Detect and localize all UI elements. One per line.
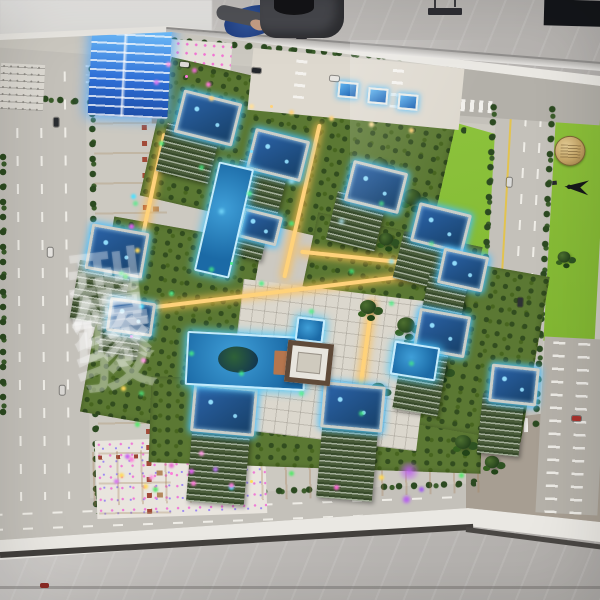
pavilion-court: [296, 352, 322, 374]
photo-architectural-model: 骏 绿 模 型: [0, 0, 600, 600]
tower-facade: [186, 423, 251, 506]
scale-model: [0, 0, 600, 600]
tower-roof: [190, 383, 258, 436]
tower-roof: [320, 381, 386, 432]
dark-panel: [544, 0, 600, 27]
car: [252, 68, 261, 73]
warm-led-cluster-north: [270, 105, 273, 108]
rgb-led-cluster-west: [130, 335, 133, 338]
central-pavilion: [284, 340, 334, 387]
car: [572, 416, 581, 421]
car: [518, 298, 523, 307]
car: [180, 62, 189, 67]
swimming-pool: [295, 316, 326, 343]
pendant-lamp-icon: [428, 0, 468, 16]
pink-led-cluster-southwest: [170, 472, 173, 475]
bush: [379, 233, 393, 246]
cyan-led-cluster: [250, 150, 253, 153]
car: [60, 386, 65, 395]
lamp-rod: [454, 0, 456, 7]
tower-roof: [106, 297, 156, 337]
pool-island: [218, 346, 259, 374]
lamp-shade: [428, 8, 462, 15]
tower-roof: [488, 364, 540, 407]
pink-led-cluster-northwest: [185, 75, 188, 78]
bush: [558, 251, 571, 262]
tower: [190, 383, 258, 436]
bush: [397, 317, 415, 332]
tower: [488, 364, 540, 407]
rgb-led-cluster-south: [250, 480, 253, 483]
bush: [360, 300, 376, 314]
car: [48, 248, 53, 257]
tower: [84, 223, 149, 278]
floor-seam: [0, 586, 600, 589]
tower-canopy: [397, 93, 418, 111]
tower-roof: [84, 223, 149, 278]
tower: [106, 297, 156, 337]
tower-canopy: [337, 81, 358, 99]
bush: [455, 435, 471, 449]
tower: [320, 381, 386, 432]
bush: [403, 189, 421, 204]
green-led-cluster: [230, 262, 233, 265]
car: [54, 118, 59, 127]
person-head: [274, 0, 314, 15]
car: [330, 76, 339, 81]
tower-canopy: [367, 87, 388, 105]
car: [507, 178, 512, 187]
red-object-on-floor: [40, 583, 49, 588]
tower-facade: [316, 419, 379, 502]
purple-light-bloom: [396, 462, 422, 480]
person: [178, 0, 343, 44]
swimming-pool: [390, 341, 441, 382]
bush: [485, 456, 499, 469]
